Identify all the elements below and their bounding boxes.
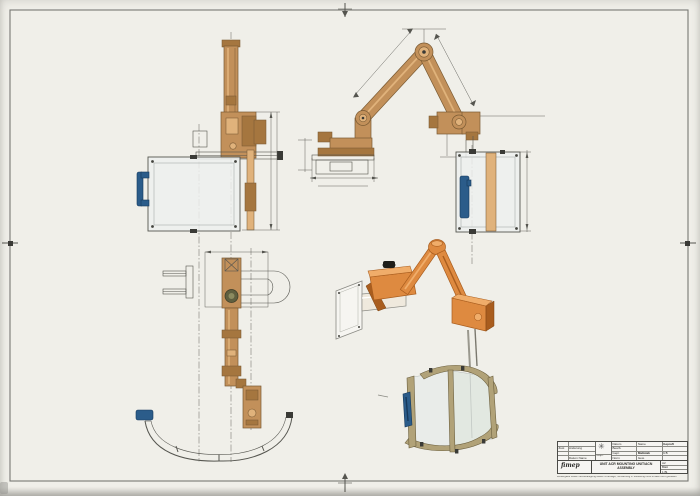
arm-swing-outline bbox=[241, 271, 290, 303]
tb-cell: 1:5 bbox=[663, 452, 687, 456]
tb-cell: Datum bbox=[612, 442, 637, 446]
tb-cell: Bearb. bbox=[612, 447, 637, 451]
shield-handle-plan bbox=[136, 410, 153, 420]
mount-plate-3d bbox=[336, 281, 362, 339]
tb-cell: Zust bbox=[558, 447, 569, 451]
scan-bottom-shade bbox=[0, 487, 700, 496]
mount-plate-plan bbox=[163, 266, 193, 298]
company-logo: fimep bbox=[558, 461, 592, 474]
panel-handle bbox=[137, 172, 149, 206]
elbow-joint-apex bbox=[415, 43, 433, 61]
tb-cell: 1 Bl. bbox=[661, 470, 687, 474]
shield-3d bbox=[378, 365, 498, 453]
drawing-sheet: ZustÄnderung Datum Name ✳ Urspr. DatumNa… bbox=[0, 0, 700, 496]
tb-cell: Name bbox=[637, 442, 662, 446]
tb-cell bbox=[637, 447, 662, 451]
drawing-title: UNIT ACR MOUNTING UNIT/ACN ASSEMBLY bbox=[592, 461, 661, 474]
tb-cell: Änderung bbox=[569, 447, 596, 451]
tb-cell: Urspr. bbox=[596, 454, 611, 461]
tb-cell bbox=[558, 452, 569, 456]
title-block-logo-icon: ✳ bbox=[598, 443, 605, 451]
tb-cell: Gepr. bbox=[612, 452, 637, 456]
title-block-revision-area: ZustÄnderung Datum Name ✳ Urspr. DatumNa… bbox=[558, 442, 687, 461]
drawing-frame bbox=[2, 3, 696, 492]
bracket-outline bbox=[193, 131, 207, 147]
center-mark-left bbox=[2, 241, 18, 246]
panel-frame-strip bbox=[486, 153, 496, 231]
tb-cell: Datum Name bbox=[569, 456, 596, 460]
tb-cell: Norm bbox=[612, 456, 637, 460]
tb-cell bbox=[663, 447, 687, 451]
effector-plan bbox=[236, 379, 261, 428]
title-block: ZustÄnderung Datum Name ✳ Urspr. DatumNa… bbox=[557, 441, 688, 474]
shoulder-joint bbox=[355, 111, 371, 143]
carriage-assembly bbox=[221, 112, 266, 158]
view-isometric bbox=[336, 240, 498, 454]
tb-cell: Gew. bbox=[637, 456, 662, 460]
protection-panel-side bbox=[148, 155, 240, 233]
tb-cell bbox=[569, 452, 596, 456]
wrist-3d bbox=[452, 294, 494, 331]
arm-column-plan bbox=[222, 308, 241, 386]
view-panel-right bbox=[456, 149, 531, 234]
view-plan bbox=[136, 251, 293, 461]
protection-note: Weitergabe sowie Vervielfältigung dieser… bbox=[557, 476, 681, 479]
drawing-canvas bbox=[0, 0, 700, 496]
tb-cell: Maßstab bbox=[637, 452, 662, 456]
drawing-title-line2: ASSEMBLY bbox=[592, 467, 660, 470]
base-unit-plan bbox=[222, 258, 241, 308]
company-logo-script: fimep bbox=[561, 463, 580, 469]
tb-cell bbox=[558, 442, 569, 446]
slide-rail bbox=[245, 150, 256, 230]
tb-cell bbox=[558, 456, 569, 460]
shield-glass-left bbox=[413, 371, 452, 451]
shield-arc-plan bbox=[145, 412, 293, 461]
sheet-info: A2 Blatt 1 Bl. bbox=[661, 461, 687, 474]
tb-cell bbox=[569, 442, 596, 446]
tb-cell bbox=[663, 456, 687, 460]
tb-cell: Gepruft bbox=[663, 442, 687, 446]
view-side-elevation bbox=[137, 40, 283, 233]
drop-rods-3d bbox=[468, 329, 477, 368]
center-mark-right bbox=[680, 241, 696, 246]
dimensions-c bbox=[520, 150, 531, 232]
scan-corner-smudge bbox=[0, 482, 8, 494]
